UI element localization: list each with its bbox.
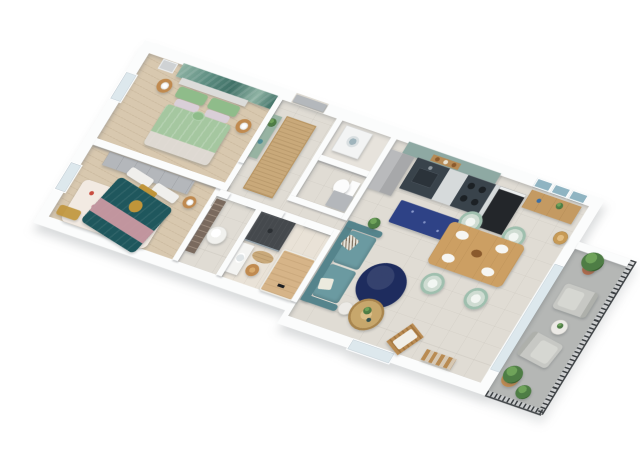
coffee-table-plant	[362, 306, 374, 316]
floorplan-render	[0, 0, 640, 470]
burner-2	[477, 186, 487, 194]
shower-column	[277, 283, 285, 288]
side-table-plant	[556, 322, 565, 329]
sideboard-plant	[554, 202, 564, 210]
bedroom2-lamp	[185, 198, 195, 206]
plate-4	[479, 266, 496, 278]
table-lamp-right	[238, 121, 250, 131]
faucet	[427, 166, 433, 171]
isometric-plan	[21, 40, 640, 428]
outdoor-cushion-1	[556, 287, 585, 311]
plate-3	[440, 252, 457, 264]
burner-4	[470, 198, 480, 206]
table-centerpiece	[469, 248, 483, 259]
table-lamp-left	[159, 81, 171, 91]
coffee-table-decor	[365, 317, 372, 322]
burner-3	[459, 194, 469, 202]
sideboard-decor	[536, 198, 543, 203]
plate-2	[493, 243, 510, 255]
washer-door	[344, 134, 362, 148]
sink-basin	[411, 168, 439, 189]
shower-drain	[266, 228, 273, 234]
burner-1	[466, 182, 476, 190]
plate-1	[454, 229, 471, 241]
